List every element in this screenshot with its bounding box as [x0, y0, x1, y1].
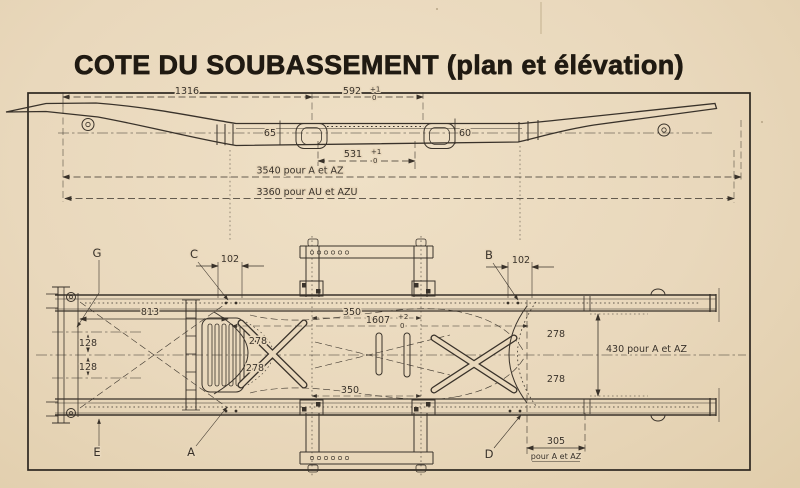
cross-brace-front [241, 323, 304, 385]
plan-view: 102 102 813 128 128 278 278 350 160 [36, 236, 746, 476]
dim-278-right-upper: 278 [547, 329, 565, 340]
dim-592-tol-minus: 0 [372, 94, 376, 102]
dim-350-lower: 350 [341, 385, 359, 396]
dim-278-left-lower: 278 [246, 363, 264, 374]
dim-430: 430 pour A et AZ [606, 344, 688, 355]
dim-3360: 3360 pour AU et AZU [256, 187, 357, 198]
elevation-view: 1316 592 +1 0 [6, 86, 741, 241]
dim-128-upper: 128 [79, 338, 97, 349]
dim-128-lower: 128 [79, 362, 97, 373]
point-label-c: C [190, 247, 198, 261]
dim-592-tol-plus: +1 [370, 86, 380, 94]
point-label-d: D [485, 447, 494, 461]
top-outrigger [300, 239, 435, 297]
dim-1607-tol-plus: +2 [398, 313, 408, 321]
dim-305-note: pour A et AZ [531, 452, 582, 461]
cross-brace-rear [434, 338, 514, 390]
drawing-border [28, 93, 750, 470]
dim-278-left-upper: 278 [249, 336, 267, 347]
dim-1607: 1607 [366, 315, 390, 326]
dim-531: 531 [344, 149, 362, 160]
scanned-manual-page: COTE DU SOUBASSEMENT (plan et élévation) [0, 0, 800, 488]
technical-drawing: 1316 592 +1 0 [0, 0, 800, 488]
dim-102-right: 102 [512, 255, 530, 266]
paper-artifacts [436, 2, 763, 123]
dim-305: 305 [547, 436, 565, 447]
bottom-outrigger [300, 400, 435, 472]
dim-531-tol-plus: +1 [371, 148, 381, 156]
dim-592: 592 [343, 86, 361, 97]
point-label-g: G [93, 246, 102, 260]
dim-102-left: 102 [221, 254, 239, 265]
dim-531-tol-minus: 0 [373, 157, 377, 165]
dim-3540: 3540 pour A et AZ [256, 166, 344, 177]
dim-350-upper: 350 [343, 307, 361, 318]
point-label-e: E [93, 445, 100, 459]
dim-1316: 1316 [175, 86, 199, 97]
dim-60: 60 [459, 128, 471, 139]
dim-65: 65 [264, 128, 276, 139]
point-label-a: A [187, 445, 195, 459]
dim-278-right-lower: 278 [547, 374, 565, 385]
dim-813: 813 [141, 307, 159, 318]
point-label-b: B [485, 248, 493, 262]
dim-1607-tol-minus: 0 [400, 322, 404, 330]
